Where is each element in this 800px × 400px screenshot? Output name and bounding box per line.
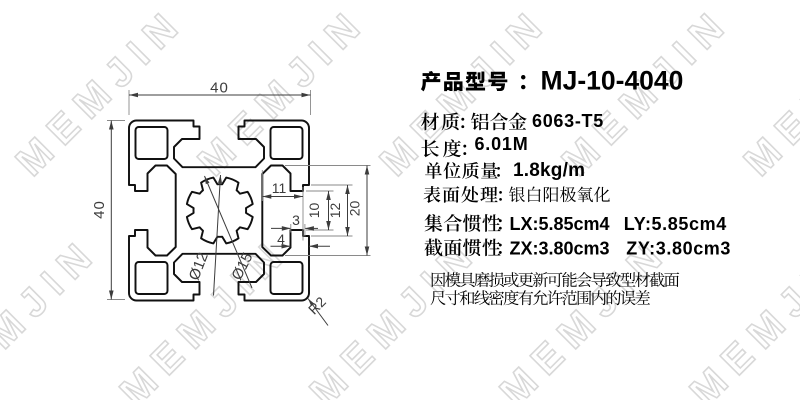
- svg-text:1.8kg/m: 1.8kg/m: [513, 160, 585, 181]
- svg-text:LX:5.85cm4: LX:5.85cm4: [510, 214, 610, 234]
- svg-text:MJ-10-4040: MJ-10-4040: [541, 66, 684, 96]
- svg-text:6063-T5: 6063-T5: [532, 111, 604, 131]
- svg-text:ZX:3.80cm3: ZX:3.80cm3: [510, 239, 610, 259]
- svg-text:6.01M: 6.01M: [475, 134, 529, 154]
- svg-text:LY:5.85cm4: LY:5.85cm4: [624, 214, 727, 234]
- svg-text:ZY:3.80cm3: ZY:3.80cm3: [626, 239, 731, 259]
